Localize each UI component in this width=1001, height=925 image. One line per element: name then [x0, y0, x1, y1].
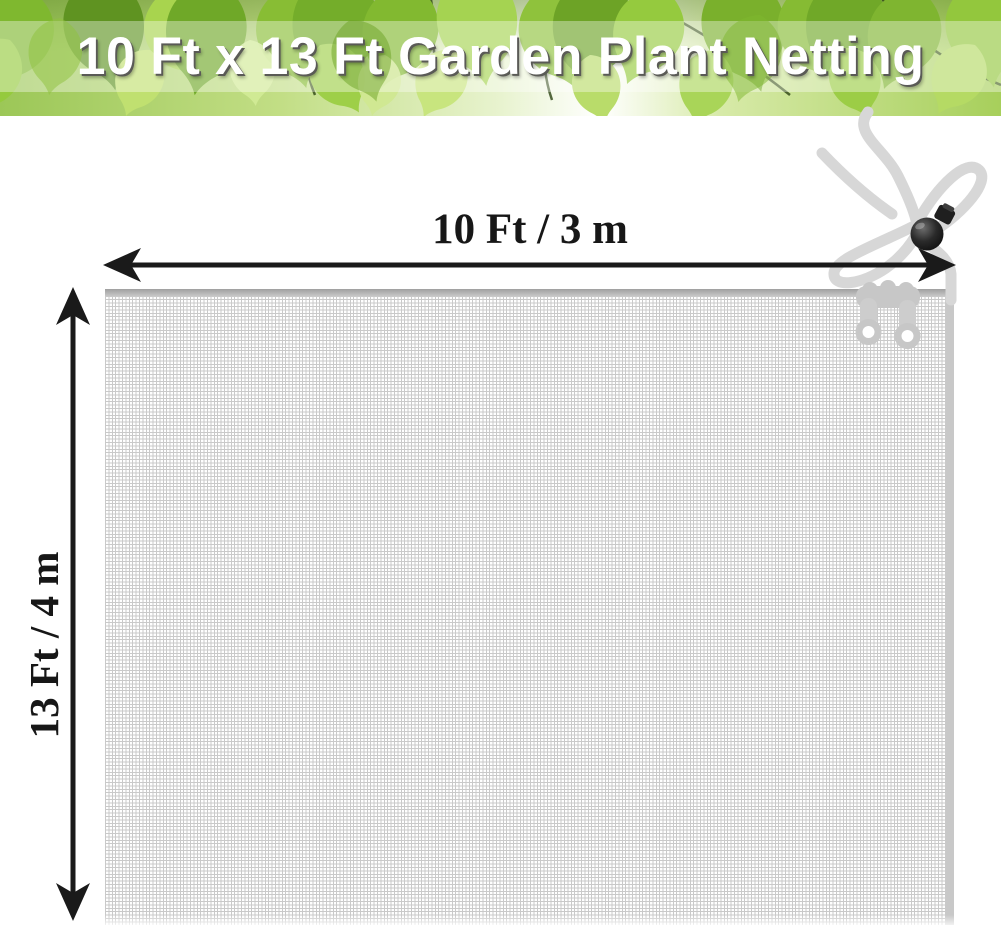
- width-dimension-label: 10 Ft / 3 m: [330, 207, 730, 253]
- product-title: 10 Ft x 13 Ft Garden Plant Netting: [10, 0, 991, 112]
- mesh-top-seam: [105, 289, 954, 296]
- elastic-cord: [822, 112, 982, 300]
- banner: 10 Ft x 13 Ft Garden Plant Netting: [0, 0, 1001, 116]
- product-image: 10 Ft x 13 Ft Garden Plant Netting 10 Ft…: [0, 0, 1001, 925]
- mesh-right-seam: [946, 289, 954, 925]
- width-dimension-arrow: [103, 248, 956, 282]
- height-dimension-label: 13 Ft / 4 m: [19, 495, 69, 795]
- cord-lock: [911, 201, 958, 250]
- mesh-net: [105, 289, 954, 925]
- mesh-bottom-fade: [105, 915, 954, 925]
